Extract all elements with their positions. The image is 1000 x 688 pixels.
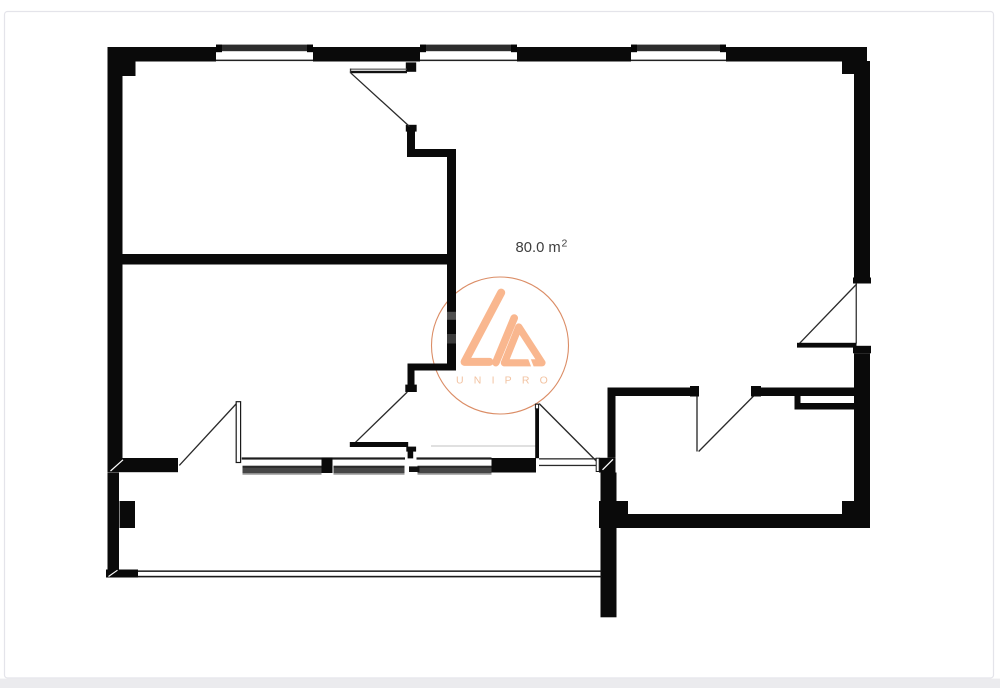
svg-text:80.0 m: 80.0 m [516,240,561,256]
svg-text:2: 2 [562,238,568,250]
svg-text:UNIPRO: UNIPRO [456,375,558,387]
